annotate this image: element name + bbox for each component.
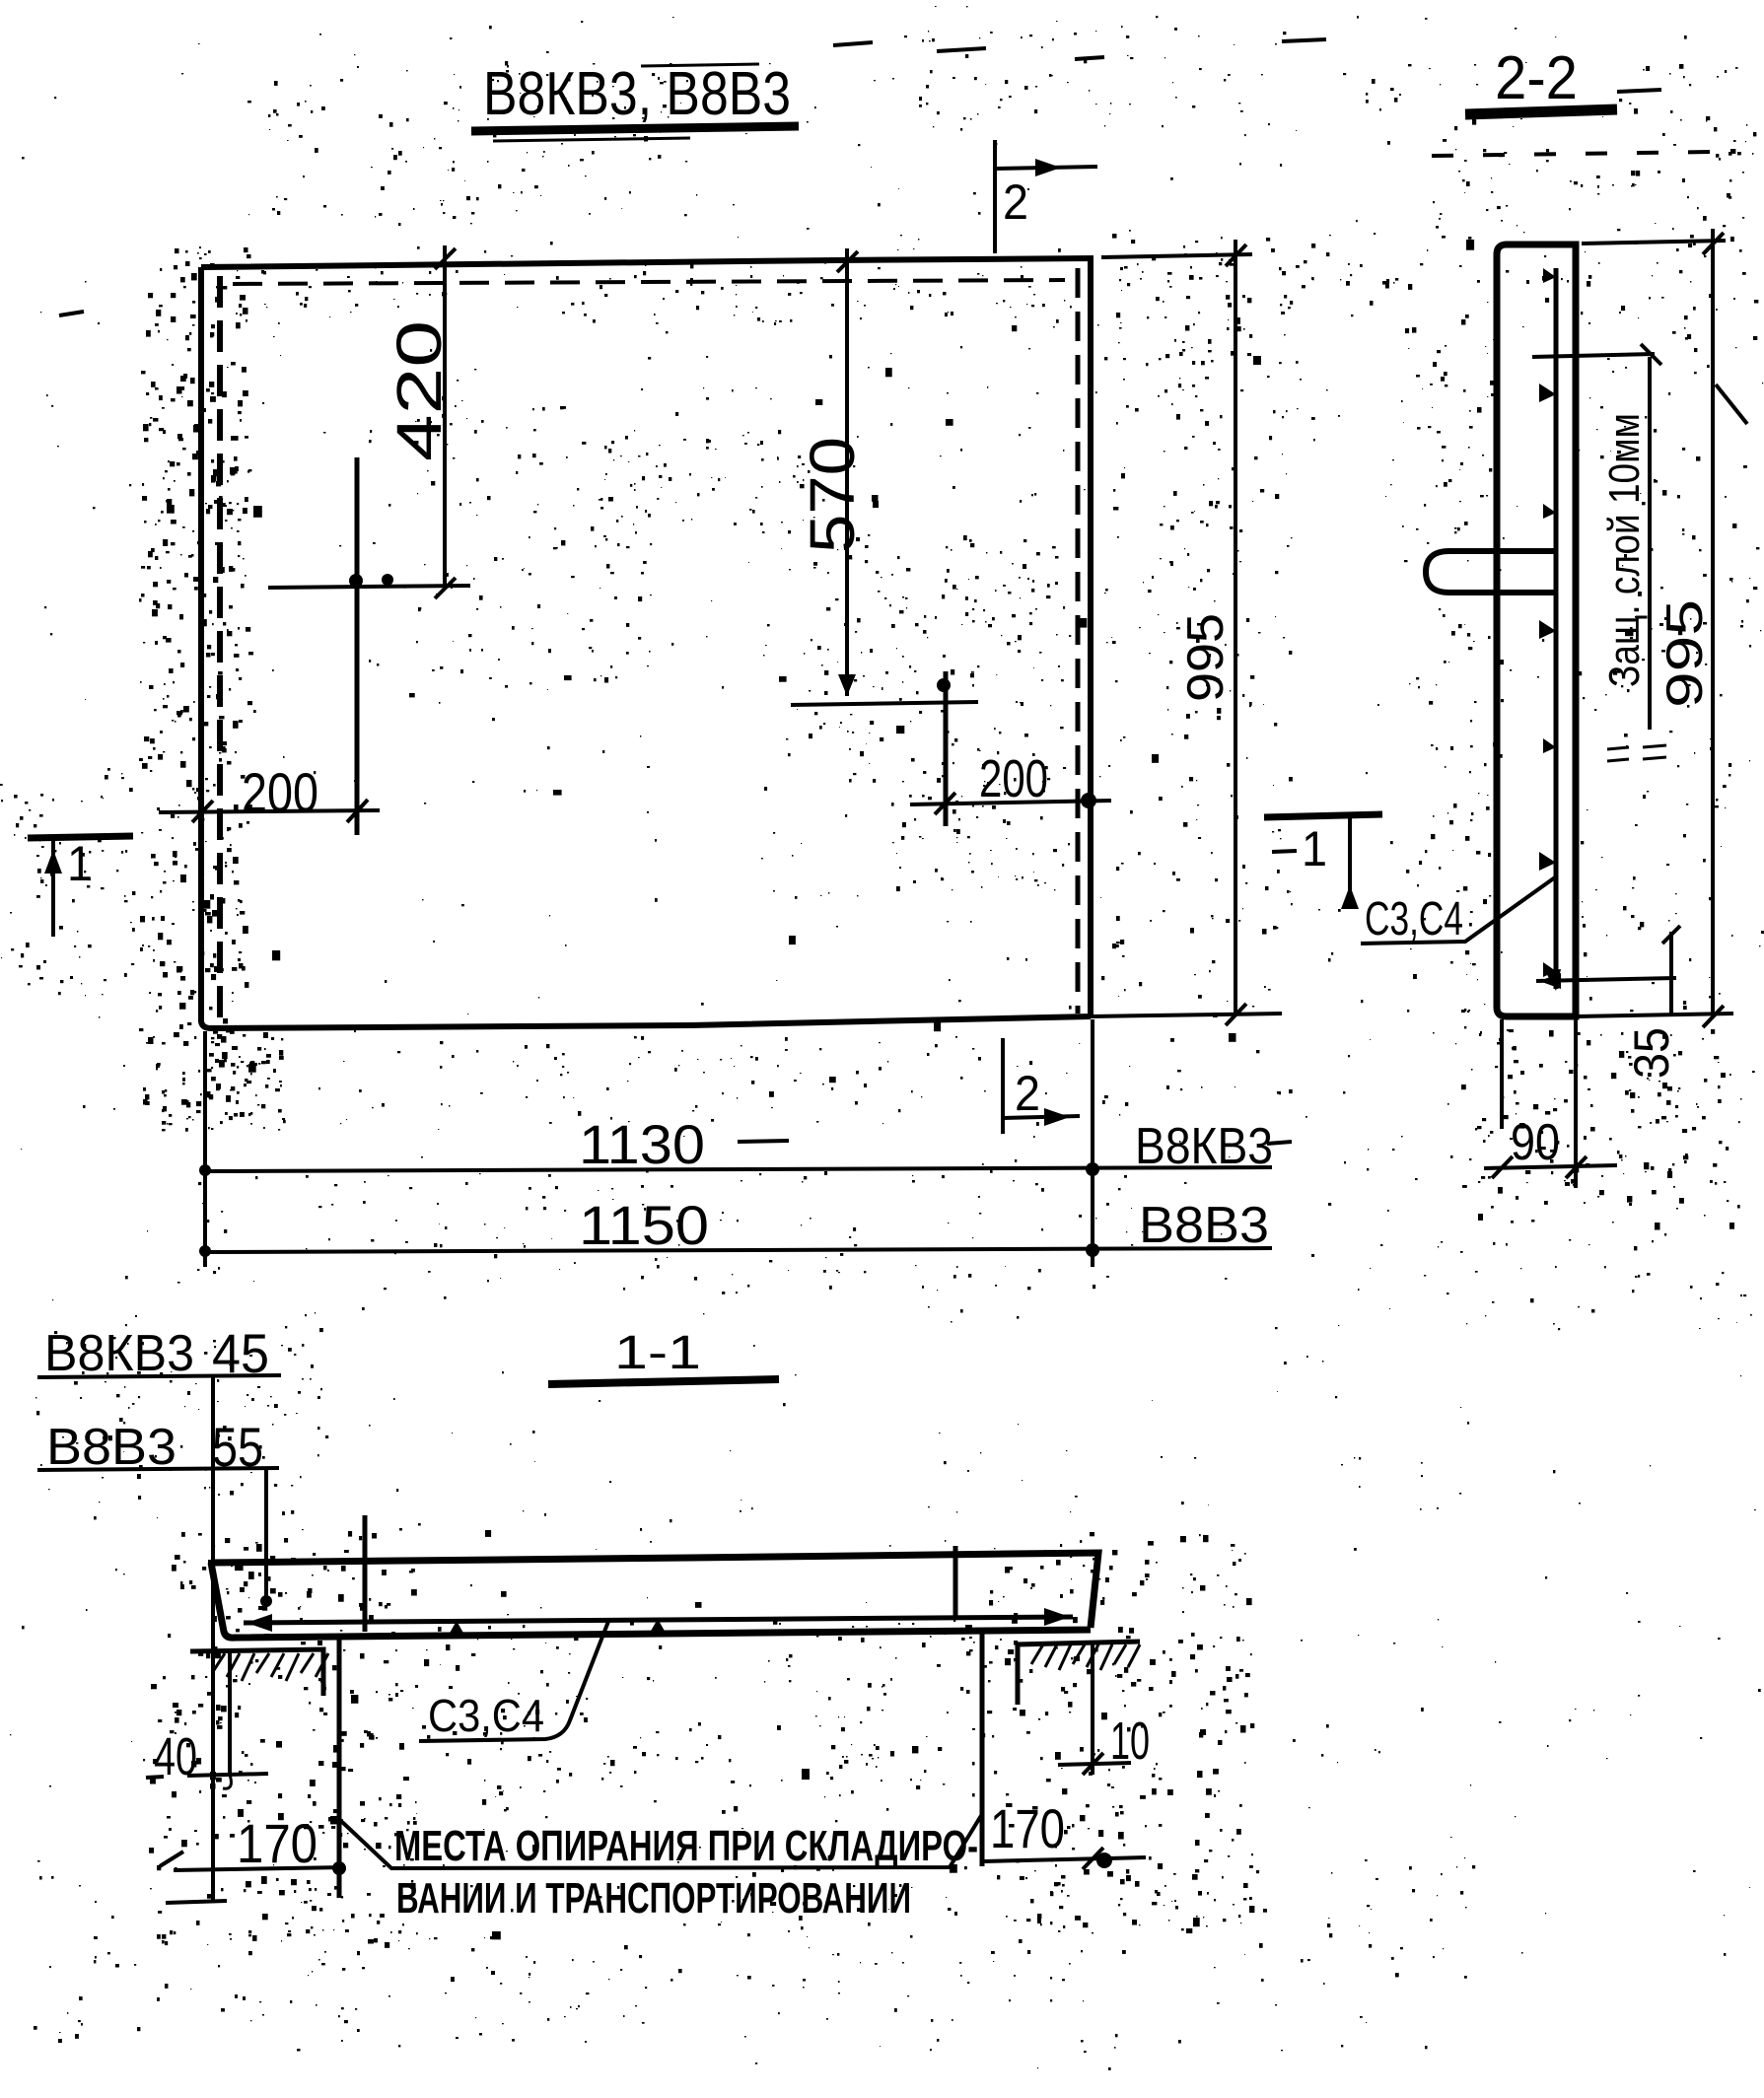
svg-text:С3,С4: С3,С4: [1365, 893, 1463, 945]
svg-text:ВАНИИ И ТРАНСПОРТИРОВАНИИ: ВАНИИ И ТРАНСПОРТИРОВАНИИ: [396, 1874, 911, 1923]
svg-text:40: 40: [154, 1727, 197, 1786]
svg-text:1: 1: [67, 836, 93, 891]
svg-text:2: 2: [1003, 175, 1028, 230]
svg-text:1130: 1130: [579, 1113, 705, 1175]
svg-text:1-1: 1-1: [614, 1327, 701, 1379]
svg-text:В8КВ3, В8В3: В8КВ3, В8В3: [483, 60, 791, 128]
svg-text:995: 995: [1177, 613, 1235, 702]
svg-text:2-2: 2-2: [1495, 44, 1578, 112]
svg-text:200: 200: [242, 761, 318, 823]
svg-text:10: 10: [1110, 1712, 1150, 1771]
svg-text:570: 570: [797, 437, 868, 553]
svg-text:1150: 1150: [579, 1194, 709, 1256]
svg-text:2: 2: [1015, 1066, 1040, 1121]
svg-text:170: 170: [990, 1797, 1065, 1859]
svg-text:МЕСТА ОПИРАНИЯ ПРИ СКЛАДИРО-: МЕСТА ОПИРАНИЯ ПРИ СКЛАДИРО-: [394, 1822, 978, 1870]
svg-text:Защ. слой 10мм: Защ. слой 10мм: [1600, 413, 1649, 687]
svg-text:1: 1: [1302, 821, 1327, 876]
svg-text:420: 420: [384, 320, 455, 461]
svg-text:В8КВ3: В8КВ3: [1135, 1118, 1273, 1175]
svg-text:В8В3: В8В3: [1139, 1197, 1269, 1254]
svg-text:В8КВ3: В8КВ3: [44, 1325, 194, 1382]
svg-text:995: 995: [1657, 599, 1714, 708]
